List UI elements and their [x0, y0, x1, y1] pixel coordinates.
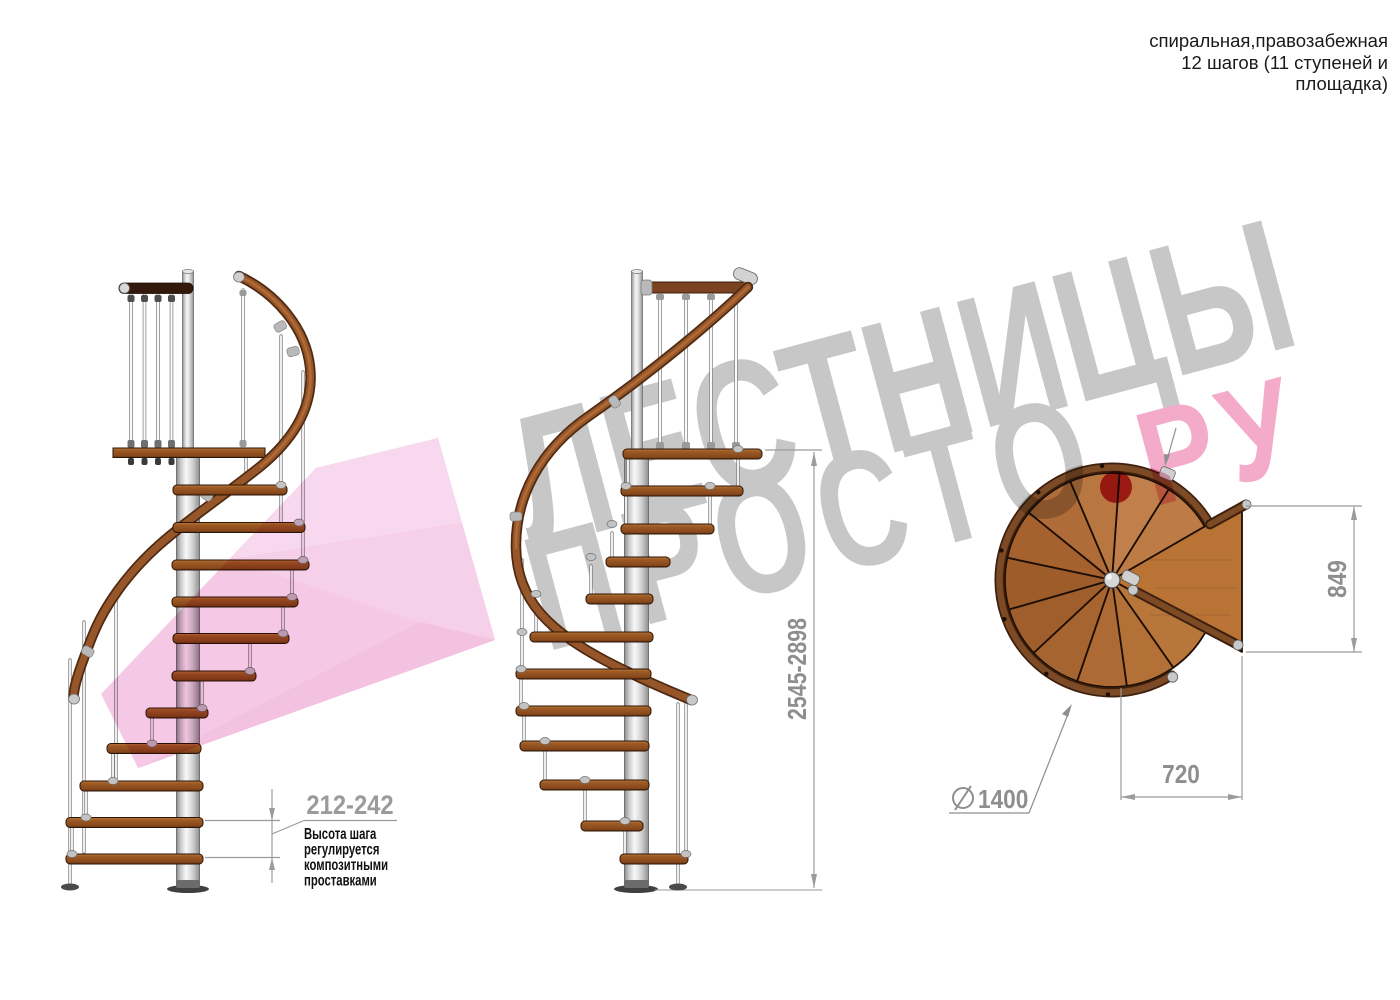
svg-text:спиральная,правозабежная: спиральная,правозабежная	[1149, 30, 1388, 51]
svg-text:площадка): площадка)	[1295, 73, 1388, 94]
svg-text:720: 720	[1162, 761, 1200, 790]
svg-text:849: 849	[1324, 560, 1353, 598]
svg-text:проставками: проставками	[304, 872, 377, 889]
svg-text:2545-2898: 2545-2898	[783, 618, 813, 720]
svg-text:1400: 1400	[978, 786, 1028, 815]
svg-text:212-242: 212-242	[306, 791, 393, 821]
svg-text:12 шагов (11 ступеней и: 12 шагов (11 ступеней и	[1181, 52, 1388, 73]
